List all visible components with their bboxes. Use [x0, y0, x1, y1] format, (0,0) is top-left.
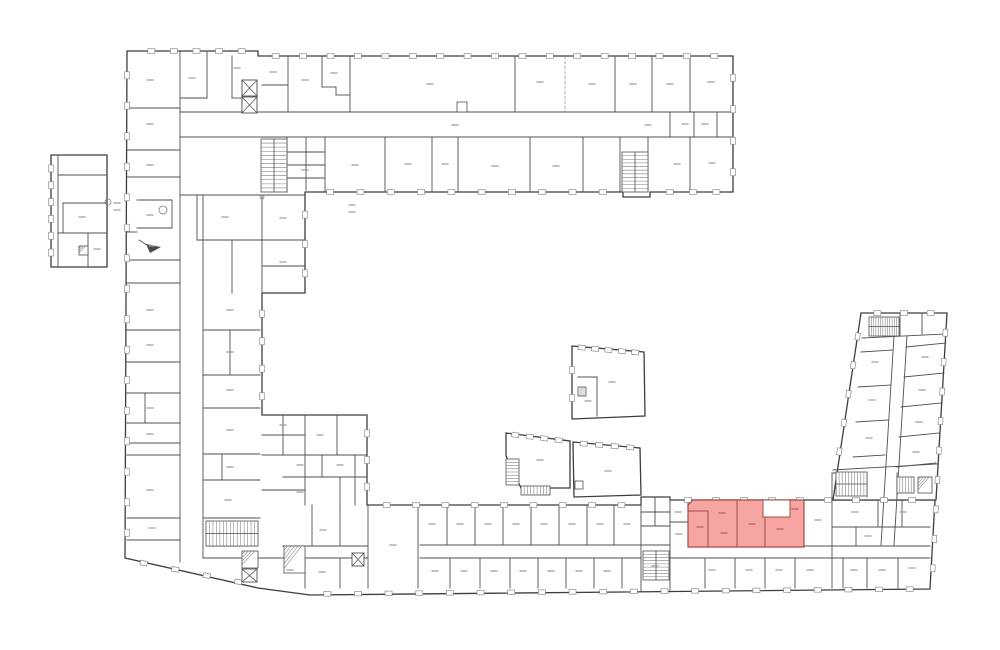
floorplan-viewport	[0, 0, 1000, 650]
floorplan-svg	[0, 0, 1000, 650]
highlight-room[interactable]	[688, 500, 804, 547]
